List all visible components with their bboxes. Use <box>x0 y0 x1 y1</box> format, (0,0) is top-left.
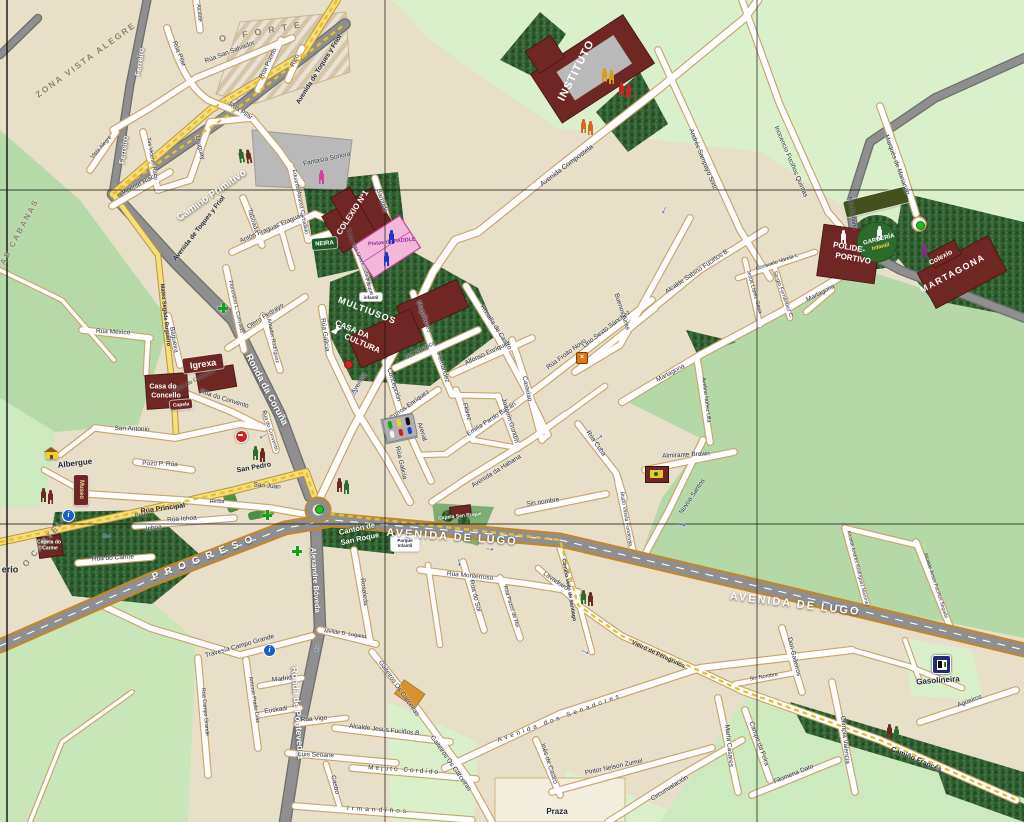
praza-square <box>495 778 625 822</box>
capela-san-roque-building <box>449 505 471 519</box>
garderia-building <box>857 222 897 262</box>
capela-do-carme-building <box>37 534 64 558</box>
igrexa-building <box>196 365 237 393</box>
melide-street-map: ZONA VISTA ALEGREO FORTEAS CABANASO CAST… <box>0 0 1024 822</box>
map-canvas <box>0 0 1024 822</box>
museo-building <box>74 476 88 505</box>
road-ronda-de-pontevedra <box>285 526 320 822</box>
capela-building <box>170 397 189 410</box>
